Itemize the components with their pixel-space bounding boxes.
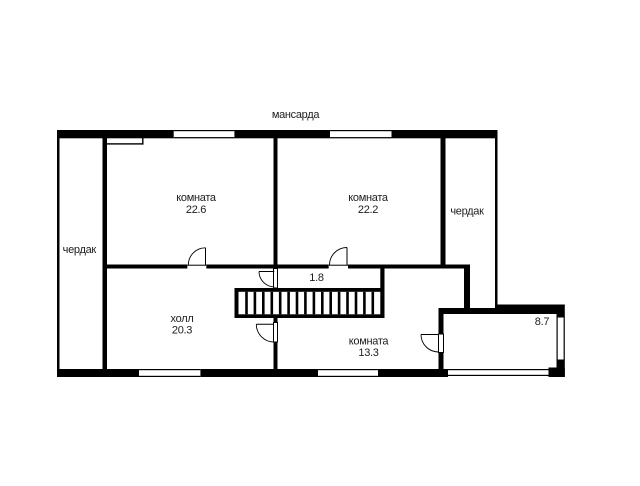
svg-text:8.7: 8.7: [535, 316, 550, 328]
svg-text:1.8: 1.8: [309, 272, 324, 284]
svg-text:13.3: 13.3: [358, 347, 378, 359]
svg-text:20.3: 20.3: [172, 324, 192, 336]
svg-text:комната: комната: [348, 192, 389, 204]
svg-text:чердак: чердак: [63, 244, 97, 256]
svg-text:комната: комната: [176, 192, 217, 204]
svg-text:22.6: 22.6: [186, 204, 206, 216]
svg-text:холл: холл: [171, 313, 194, 325]
svg-text:22.2: 22.2: [358, 204, 378, 216]
svg-text:комната: комната: [349, 335, 390, 347]
svg-text:мансарда: мансарда: [272, 109, 321, 121]
svg-text:чердак: чердак: [450, 205, 484, 217]
